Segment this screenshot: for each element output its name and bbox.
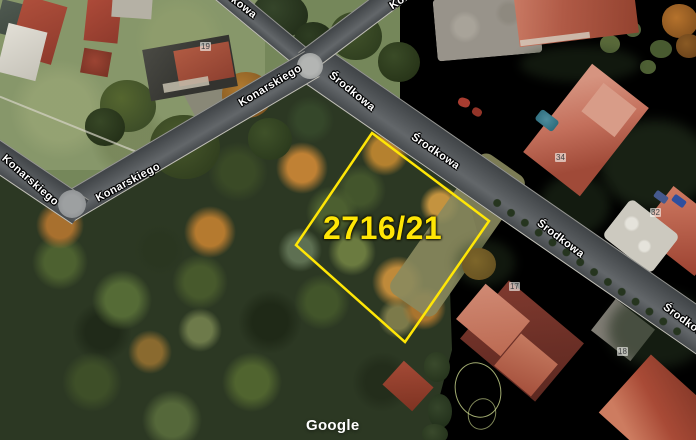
satellite-map-canvas[interactable]: Konarskiego Konarskiego Konarskiego Kona… bbox=[0, 0, 696, 440]
google-watermark[interactable]: Google bbox=[306, 417, 359, 434]
house-number: 34 bbox=[555, 153, 566, 162]
house-number: 32 bbox=[650, 208, 661, 217]
house-number: 18 bbox=[617, 347, 628, 356]
house-number: 19 bbox=[200, 42, 211, 51]
parcel-label[interactable]: 2716/21 bbox=[323, 211, 442, 245]
house-number: 17 bbox=[509, 282, 520, 291]
